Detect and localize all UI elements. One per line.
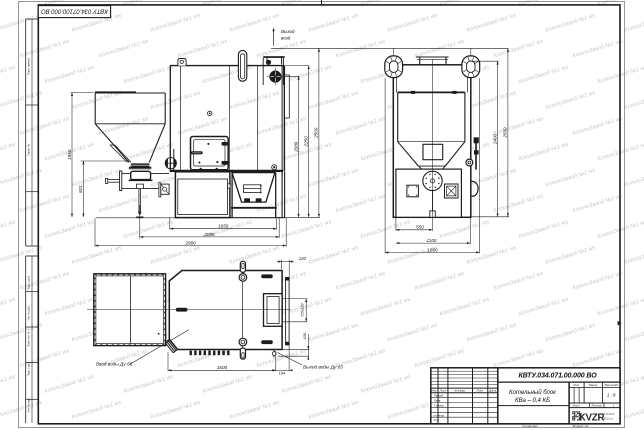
svg-text:2086: 2086	[293, 141, 298, 153]
svg-text:Выход: Выход	[281, 29, 295, 34]
svg-text:Подп. и дата: Подп. и дата	[28, 275, 31, 290]
svg-text:Копировал: Копировал	[523, 424, 539, 428]
svg-text:Перв. примен.: Перв. примен.	[27, 57, 31, 75]
svg-text:Лист: Лист	[439, 389, 448, 393]
svg-text:Разраб.: Разраб.	[434, 394, 444, 398]
svg-text:194: 194	[278, 371, 285, 376]
svg-text:1950: 1950	[67, 149, 72, 160]
svg-text:2500: 2500	[503, 127, 508, 139]
svg-text:Выход воды Ду 65: Выход воды Ду 65	[303, 364, 343, 369]
svg-text:возд: возд	[281, 36, 291, 41]
svg-text:№ докум.: № докум.	[454, 389, 466, 393]
svg-text:ЗАВОД №1: ЗАВОД №1	[601, 417, 614, 420]
svg-text:Пров.: Пров.	[434, 399, 441, 403]
svg-text:Лит.: Лит.	[572, 383, 580, 387]
svg-text:2900: 2900	[184, 241, 196, 246]
svg-text:КВТУ 034.07100.000 ВО: КВТУ 034.07100.000 ВО	[41, 7, 108, 13]
svg-text:1100: 1100	[427, 238, 437, 243]
svg-text:2250: 2250	[304, 136, 309, 148]
svg-text:821: 821	[78, 185, 83, 193]
svg-text:Масса: Масса	[589, 383, 598, 387]
svg-text:Т.контр.: Т.контр.	[434, 404, 445, 408]
svg-text:Н.контр.: Н.контр.	[434, 413, 445, 417]
svg-text:550: 550	[416, 225, 424, 230]
svg-text:Котельный блок: Котельный блок	[509, 389, 557, 396]
svg-text:1 : 8: 1 : 8	[607, 393, 616, 398]
svg-text:Листов: Листов	[590, 404, 602, 408]
svg-text:Инв. № дубл.: Инв. № дубл.	[28, 305, 31, 320]
svg-text:1600: 1600	[217, 365, 228, 370]
svg-text:1600: 1600	[427, 247, 438, 252]
svg-text:Лист: Лист	[571, 404, 580, 408]
svg-text:2500: 2500	[314, 127, 319, 139]
svg-text:КОТЕЛЬНЫЙ: КОТЕЛЬНЫЙ	[600, 413, 615, 416]
svg-text:КВа – 0,4 КБ: КВа – 0,4 КБ	[515, 398, 550, 404]
svg-text:100: 100	[302, 332, 307, 339]
svg-text:КВТУ.034.071.00.000 ВО: КВТУ.034.071.00.000 ВО	[518, 373, 597, 380]
svg-text:Вход воды Ду 65: Вход воды Ду 65	[96, 362, 133, 367]
svg-text:Дата: Дата	[488, 389, 496, 393]
svg-text:Справ. №: Справ. №	[27, 144, 31, 156]
svg-text:Масштаб: Масштаб	[605, 383, 618, 387]
svg-text:725±100: 725±100	[300, 303, 304, 317]
svg-text:Формат А2: Формат А2	[573, 424, 589, 428]
svg-text:2400: 2400	[492, 133, 497, 145]
svg-text:Утв.: Утв.	[434, 418, 440, 422]
svg-text:Инв. № подл.: Инв. № подл.	[28, 397, 31, 412]
svg-text:120: 120	[299, 256, 307, 261]
svg-text:2095: 2095	[203, 232, 215, 237]
svg-text:Изм.: Изм.	[432, 389, 438, 393]
svg-text:Подп. и дата: Подп. и дата	[28, 361, 31, 376]
svg-text:Подп.: Подп.	[477, 389, 484, 393]
svg-text:Взам. инв. №: Взам. инв. №	[28, 331, 31, 346]
svg-text:1650: 1650	[218, 224, 229, 229]
